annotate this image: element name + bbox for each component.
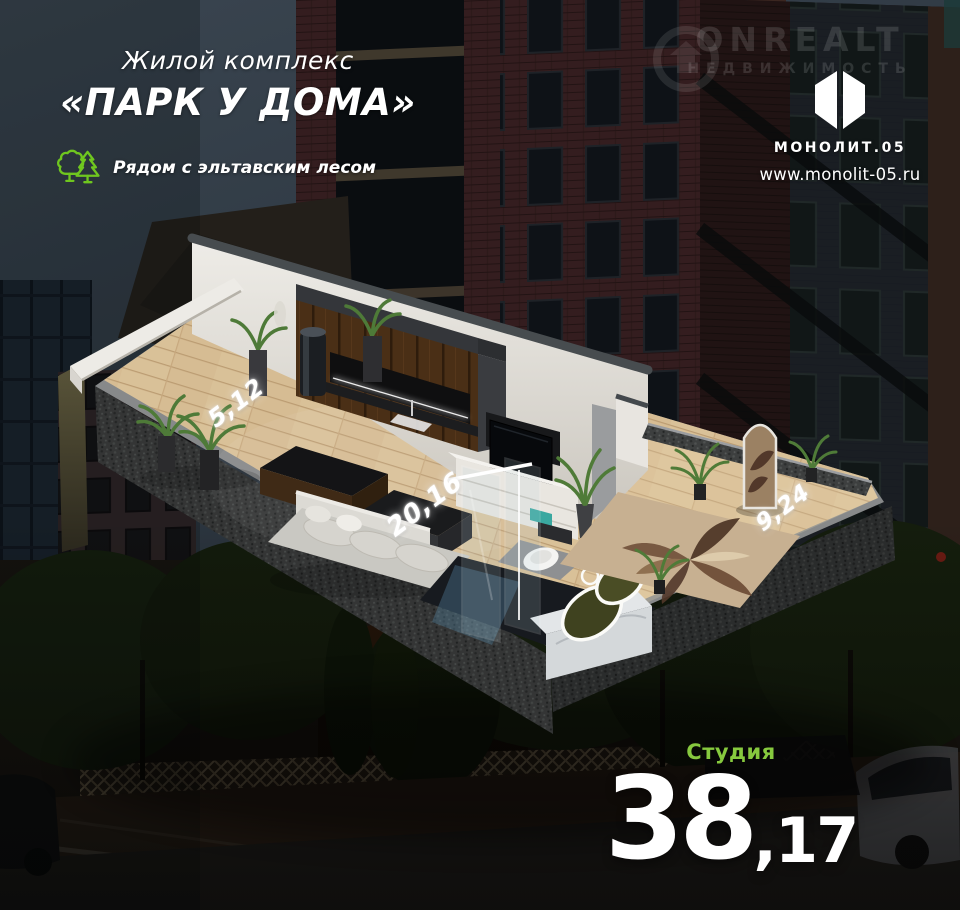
onrealt-circle-logo <box>652 25 722 95</box>
area-int: 38 <box>605 752 754 885</box>
area-frac: ,17 <box>753 813 857 869</box>
slab-west-wall <box>58 362 88 552</box>
complex-label: Жилой комплекс <box>38 46 438 75</box>
unit-info: Студия 38,17 <box>596 740 866 871</box>
monolit-logo <box>814 70 866 130</box>
eco-note: Рядом с эльтавским лесом <box>113 158 376 178</box>
eco-line: Рядом с эльтавским лесом <box>56 140 376 196</box>
brand-name: МОНОЛИТ.05 <box>740 140 940 156</box>
trees-icon <box>56 140 101 196</box>
unit-total-area: 38,17 <box>596 768 866 871</box>
brand-block: МОНОЛИТ.05 www.monolit-05.ru <box>740 70 940 184</box>
brand-website: www.monolit-05.ru <box>740 165 940 184</box>
header-block: Жилой комплекс «ПАРК У ДОМА» <box>38 46 438 124</box>
complex-name: «ПАРК У ДОМА» <box>38 81 438 124</box>
poster: Жилой комплекс «ПАРК У ДОМА» Рядом с эль… <box>0 0 960 910</box>
